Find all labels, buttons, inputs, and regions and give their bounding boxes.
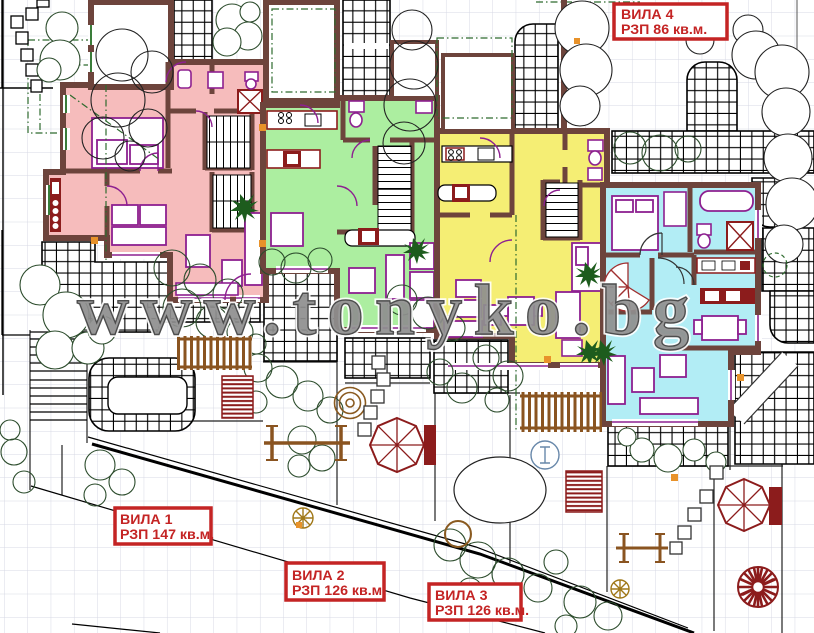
svg-text:РЗП 86 кв.м.: РЗП 86 кв.м. [621, 22, 707, 38]
svg-text:ВИЛА 3: ВИЛА 3 [435, 588, 488, 604]
svg-text:ВИЛА 4: ВИЛА 4 [621, 7, 674, 23]
svg-text:РЗП 147 кв.м.: РЗП 147 кв.м. [120, 527, 214, 543]
svg-text:ВИЛА 2: ВИЛА 2 [292, 568, 345, 584]
svg-text:РЗП 126 кв.м.: РЗП 126 кв.м. [292, 583, 386, 599]
svg-text:РЗП 126 кв.м.: РЗП 126 кв.м. [435, 603, 529, 619]
svg-text:ВИЛА 1: ВИЛА 1 [120, 512, 173, 528]
